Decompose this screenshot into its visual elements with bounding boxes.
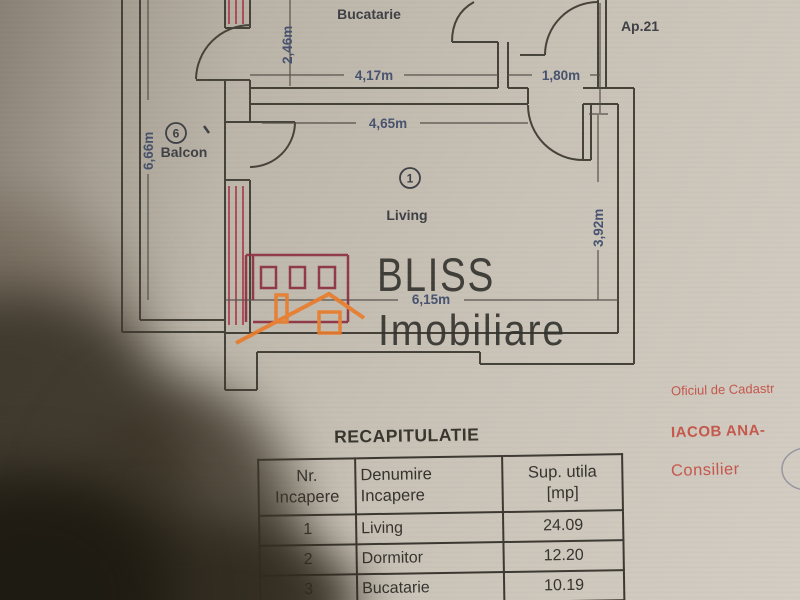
recap-section: RECAPITULATIE Nr. Incapere Denumire Inca… bbox=[257, 422, 626, 600]
living-label: Living bbox=[386, 207, 427, 223]
dim-living-top: 4,65m bbox=[369, 116, 407, 131]
recap-header-row: Nr. Incapere Denumire Incapere Sup. util… bbox=[258, 454, 623, 516]
recap-header-name-line2: Incapere bbox=[361, 484, 498, 508]
row-nr: 3 bbox=[260, 574, 357, 600]
north-tick-mark bbox=[204, 126, 209, 133]
table-row: 3 Bucatarie 10.19 bbox=[260, 570, 624, 600]
photographed-floor-plan-document: 2,46m 4,17m 1,80m 4,65m 6,66m 3,92m 6,15… bbox=[0, 0, 800, 600]
brand-name: BLISS bbox=[377, 248, 495, 301]
row-area: 24.09 bbox=[503, 510, 623, 542]
dim-kitchen-door: 2,46m bbox=[280, 26, 295, 64]
dim-hall-width: 1,80m bbox=[542, 68, 580, 83]
dim-balcony-length: 6,66m bbox=[141, 132, 156, 170]
recap-header-area-line2: [mp] bbox=[508, 482, 618, 505]
recap-table: Nr. Incapere Denumire Incapere Sup. util… bbox=[257, 453, 625, 600]
kitchen-label: Bucatarie bbox=[337, 6, 401, 22]
recap-header-area: Sup. utila [mp] bbox=[502, 454, 623, 512]
apartment-label: Ap.21 bbox=[621, 18, 659, 34]
stamp-name-line: IACOB ANA- bbox=[671, 422, 766, 441]
dim-kitchen-width: 4,17m bbox=[355, 68, 393, 83]
round-stamp-edge bbox=[782, 448, 800, 490]
row-area: 10.19 bbox=[504, 570, 624, 600]
recap-title: RECAPITULATIE bbox=[257, 423, 557, 449]
recap-header-name-line1: Denumire bbox=[360, 463, 497, 487]
recap-header-area-line1: Sup. utila bbox=[507, 461, 617, 484]
row-name: Dormitor bbox=[356, 542, 503, 574]
row-nr: 1 bbox=[259, 514, 356, 546]
living-number: 1 bbox=[407, 172, 414, 186]
recap-header-nr: Nr. Incapere bbox=[258, 458, 356, 516]
row-nr: 2 bbox=[259, 544, 356, 576]
recap-header-nr-line2: Incapere bbox=[264, 486, 351, 509]
bliss-house-logo: BLISS Imobiliare bbox=[236, 248, 566, 355]
balcony-number: 6 bbox=[173, 127, 180, 141]
dim-living-right: 3,92m bbox=[591, 209, 606, 247]
house-roof-icon bbox=[236, 294, 364, 343]
row-name: Living bbox=[356, 512, 503, 544]
row-area: 12.20 bbox=[503, 540, 623, 572]
row-name: Bucatarie bbox=[357, 572, 504, 600]
balcony-railing bbox=[122, 0, 225, 332]
stamp-title-line: Consilier bbox=[671, 460, 740, 481]
recap-header-nr-line1: Nr. bbox=[263, 465, 350, 488]
brand-subname: Imobiliare bbox=[378, 306, 566, 355]
stamp-office-line: Oficiul de Cadastr bbox=[671, 381, 775, 399]
balcony-label: Balcon bbox=[161, 144, 208, 160]
recap-header-name: Denumire Incapere bbox=[355, 456, 503, 514]
window-hatch-lines bbox=[229, 0, 243, 325]
